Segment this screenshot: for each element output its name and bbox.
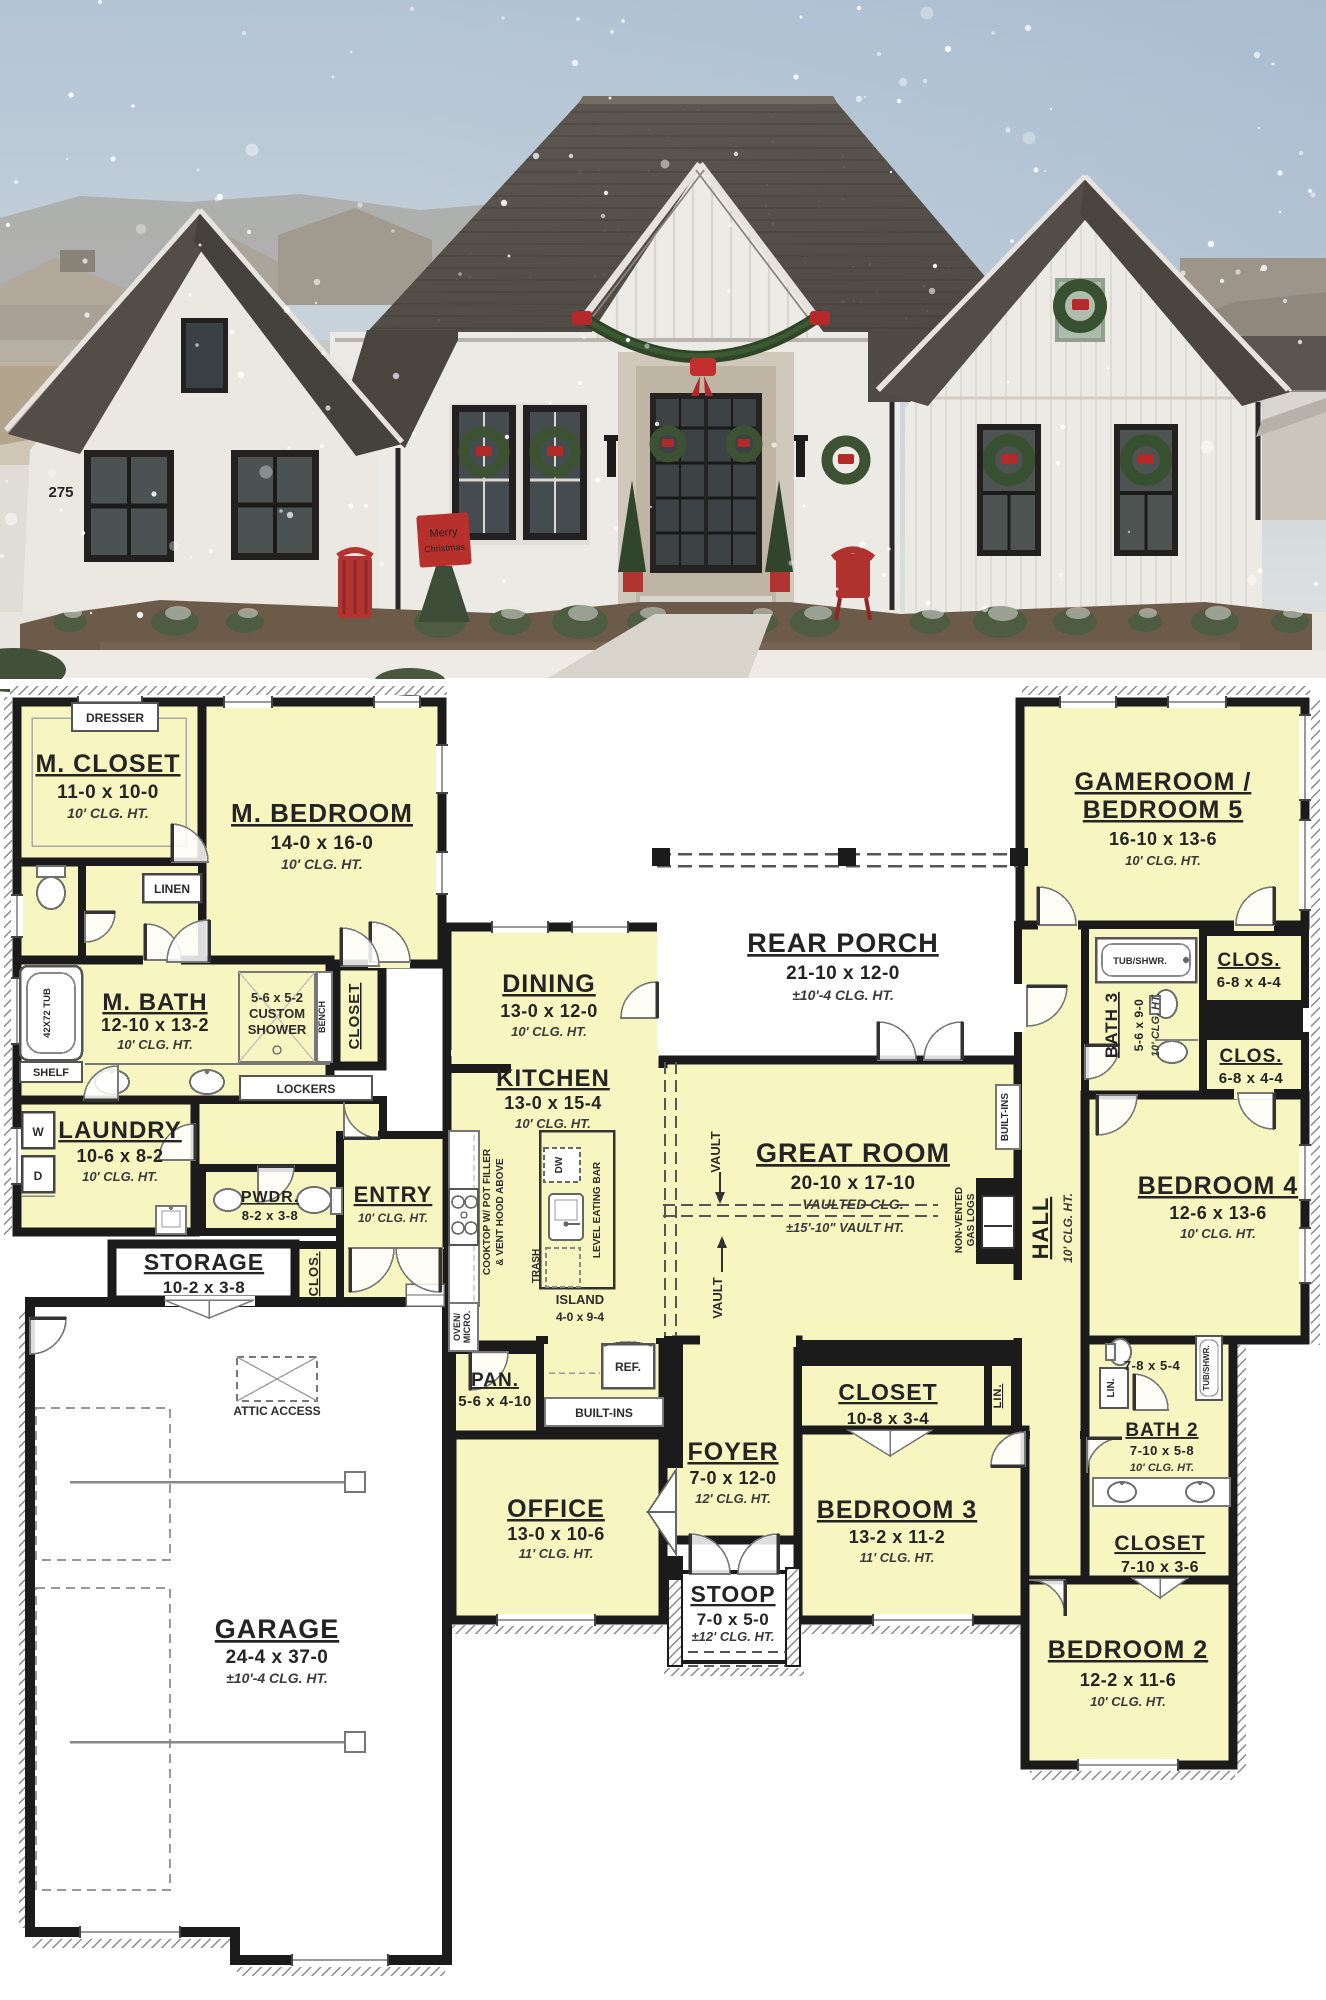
- svg-text:5-6 x 5-2: 5-6 x 5-2: [251, 990, 303, 1005]
- svg-text:14-0 x 16-0: 14-0 x 16-0: [271, 833, 374, 854]
- svg-text:M. BEDROOM: M. BEDROOM: [231, 798, 413, 828]
- svg-text:42X72 TUB: 42X72 TUB: [42, 988, 53, 1038]
- svg-text:10' CLG. HT.: 10' CLG. HT.: [82, 1169, 158, 1184]
- svg-text:275: 275: [48, 484, 73, 501]
- svg-text:GREAT ROOM: GREAT ROOM: [756, 1138, 950, 1168]
- svg-text:CLOS.: CLOS.: [306, 1252, 321, 1297]
- svg-text:W: W: [32, 1125, 44, 1139]
- svg-text:MICRO.: MICRO.: [462, 1311, 472, 1344]
- svg-text:BATH 2: BATH 2: [1125, 1420, 1198, 1441]
- svg-text:M. CLOSET: M. CLOSET: [35, 750, 180, 778]
- svg-text:10' CLG. HT.: 10' CLG. HT.: [1130, 1462, 1194, 1474]
- svg-text:REAR PORCH: REAR PORCH: [747, 928, 939, 958]
- svg-text:CLOS.: CLOS.: [1217, 950, 1280, 971]
- svg-text:VAULT: VAULT: [710, 1277, 725, 1318]
- svg-text:7-0 x 5-0: 7-0 x 5-0: [697, 1610, 770, 1629]
- svg-text:10' CLG. HT.: 10' CLG. HT.: [1090, 1694, 1166, 1709]
- svg-text:10' CLG. HT.: 10' CLG. HT.: [515, 1116, 591, 1131]
- svg-text:Merry: Merry: [429, 526, 458, 540]
- svg-text:12' CLG. HT.: 12' CLG. HT.: [695, 1491, 771, 1506]
- svg-text:4-0 x 9-4: 4-0 x 9-4: [556, 1310, 604, 1324]
- svg-text:STORAGE: STORAGE: [144, 1249, 264, 1275]
- svg-text:10' CLG. HT.: 10' CLG. HT.: [281, 856, 363, 872]
- svg-text:HALL: HALL: [1028, 1197, 1053, 1260]
- svg-text:D: D: [34, 1169, 43, 1183]
- svg-text:CLOS.: CLOS.: [1219, 1046, 1282, 1067]
- svg-text:6-8 x 4-4: 6-8 x 4-4: [1219, 1070, 1284, 1087]
- svg-text:11' CLG. HT.: 11' CLG. HT.: [860, 1550, 935, 1565]
- svg-text:10-2 x 3-8: 10-2 x 3-8: [163, 1278, 246, 1297]
- svg-text:10' CLG. HT.: 10' CLG. HT.: [1061, 1193, 1075, 1263]
- svg-text:LOCKERS: LOCKERS: [277, 1082, 336, 1096]
- svg-text:24-4 x 37-0: 24-4 x 37-0: [226, 1647, 329, 1668]
- svg-text:10' CLG. HT.: 10' CLG. HT.: [117, 1037, 193, 1052]
- svg-text:CLOSET: CLOSET: [1114, 1532, 1205, 1555]
- svg-text:NON-VENTED: NON-VENTED: [954, 1187, 965, 1253]
- svg-text:21-10 x 12-0: 21-10 x 12-0: [786, 963, 900, 984]
- svg-text:M. BATH: M. BATH: [102, 989, 207, 1016]
- svg-text:GAMEROOM /: GAMEROOM /: [1075, 768, 1252, 796]
- svg-text:±15'-10" VAULT HT.: ±15'-10" VAULT HT.: [786, 1220, 904, 1235]
- svg-text:DW: DW: [554, 1156, 565, 1173]
- svg-text:12-2 x 11-6: 12-2 x 11-6: [1080, 1670, 1177, 1690]
- svg-text:LIN.: LIN.: [1106, 1378, 1117, 1397]
- svg-text:FOYER: FOYER: [687, 1438, 778, 1466]
- svg-text:COOKTOP W/ POT FILLER: COOKTOP W/ POT FILLER: [482, 1148, 493, 1275]
- svg-text:10-6 x 8-2: 10-6 x 8-2: [76, 1146, 163, 1166]
- svg-text:OFFICE: OFFICE: [507, 1495, 605, 1523]
- svg-text:5-6 x 9-0: 5-6 x 9-0: [1132, 999, 1146, 1052]
- svg-text:BUILT-INS: BUILT-INS: [1000, 1093, 1011, 1141]
- svg-text:DRESSER: DRESSER: [86, 711, 144, 725]
- svg-text:12-10 x 13-2: 12-10 x 13-2: [101, 1015, 209, 1035]
- svg-text:BENCH: BENCH: [317, 1001, 327, 1033]
- svg-text:11' CLG. HT.: 11' CLG. HT.: [519, 1546, 594, 1561]
- svg-text:8-2 x 3-8: 8-2 x 3-8: [242, 1208, 299, 1223]
- svg-text:13-0 x 12-0: 13-0 x 12-0: [500, 1001, 598, 1021]
- svg-text:10' CLG. HT.: 10' CLG. HT.: [1125, 853, 1201, 868]
- svg-text:11-0 x 10-0: 11-0 x 10-0: [57, 782, 159, 803]
- svg-text:10' CLG. HT.: 10' CLG. HT.: [1180, 1226, 1256, 1241]
- svg-text:REF.: REF.: [615, 1360, 641, 1374]
- svg-text:BEDROOM 5: BEDROOM 5: [1083, 796, 1243, 824]
- svg-text:BATH 3: BATH 3: [1102, 992, 1121, 1058]
- svg-text:& VENT HOOD ABOVE: & VENT HOOD ABOVE: [495, 1158, 506, 1266]
- svg-text:5-6 x 4-10: 5-6 x 4-10: [458, 1393, 531, 1410]
- svg-text:13-0 x 15-4: 13-0 x 15-4: [504, 1093, 602, 1113]
- svg-text:CLOSET: CLOSET: [346, 983, 363, 1050]
- svg-text:16-10 x 13-6: 16-10 x 13-6: [1109, 829, 1217, 849]
- svg-text:10' CLG. HT.: 10' CLG. HT.: [358, 1211, 428, 1225]
- svg-text:PAN.: PAN.: [471, 1370, 519, 1391]
- svg-text:ISLAND: ISLAND: [556, 1292, 604, 1307]
- svg-text:20-10 x 17-10: 20-10 x 17-10: [791, 1173, 916, 1194]
- svg-text:13-2 x 11-2: 13-2 x 11-2: [849, 1527, 946, 1547]
- svg-text:OVEN/: OVEN/: [452, 1313, 462, 1342]
- svg-text:PWDR.: PWDR.: [241, 1189, 299, 1206]
- svg-text:SHOWER: SHOWER: [248, 1022, 307, 1037]
- svg-text:ATTIC ACCESS: ATTIC ACCESS: [233, 1404, 320, 1418]
- svg-text:±12' CLG. HT.: ±12' CLG. HT.: [692, 1629, 775, 1644]
- svg-text:VAULTED CLG.: VAULTED CLG.: [802, 1196, 903, 1212]
- svg-text:6-8 x 4-4: 6-8 x 4-4: [1217, 974, 1282, 991]
- svg-text:10' CLG. HT.: 10' CLG. HT.: [511, 1024, 587, 1039]
- svg-text:GARAGE: GARAGE: [215, 1614, 340, 1644]
- svg-text:7-0 x 12-0: 7-0 x 12-0: [689, 1468, 776, 1488]
- svg-text:10' CLG. HT.: 10' CLG. HT.: [67, 805, 149, 821]
- svg-text:LIN.: LIN.: [992, 1384, 1004, 1409]
- svg-text:GAS LOGS: GAS LOGS: [966, 1193, 977, 1246]
- svg-text:LINEN: LINEN: [154, 882, 190, 896]
- svg-text:CUSTOM: CUSTOM: [249, 1006, 305, 1021]
- svg-text:12-6 x 13-6: 12-6 x 13-6: [1169, 1203, 1267, 1223]
- svg-text:13-0 x 10-6: 13-0 x 10-6: [507, 1524, 605, 1544]
- svg-text:STOOP: STOOP: [690, 1581, 775, 1607]
- svg-text:TRASH: TRASH: [531, 1249, 542, 1283]
- svg-text:DINING: DINING: [502, 970, 596, 998]
- svg-text:±10'-4 CLG. HT.: ±10'-4 CLG. HT.: [792, 987, 894, 1003]
- svg-text:TUB/SHWR.: TUB/SHWR.: [1202, 1345, 1211, 1390]
- svg-text:VAULT: VAULT: [708, 1131, 723, 1172]
- svg-text:BEDROOM 3: BEDROOM 3: [817, 1496, 977, 1524]
- svg-text:LAUNDRY: LAUNDRY: [58, 1117, 181, 1144]
- svg-text:±10'-4 CLG. HT.: ±10'-4 CLG. HT.: [226, 1670, 328, 1686]
- svg-text:7-10 x 5-8: 7-10 x 5-8: [1130, 1443, 1194, 1458]
- svg-text:10-8 x 3-4: 10-8 x 3-4: [847, 1409, 930, 1428]
- svg-text:TUB/SHWR.: TUB/SHWR.: [1113, 956, 1167, 967]
- svg-text:CLOSET: CLOSET: [838, 1379, 937, 1405]
- svg-text:LEVEL EATING BAR: LEVEL EATING BAR: [592, 1161, 603, 1258]
- svg-text:KITCHEN: KITCHEN: [496, 1065, 610, 1092]
- svg-text:7-10 x 3-6: 7-10 x 3-6: [1121, 1559, 1199, 1576]
- svg-text:SHELF: SHELF: [33, 1067, 69, 1079]
- svg-text:BEDROOM 2: BEDROOM 2: [1048, 1636, 1208, 1664]
- svg-text:7-8 x 5-4: 7-8 x 5-4: [1124, 1358, 1181, 1373]
- svg-text:BEDROOM 4: BEDROOM 4: [1138, 1172, 1298, 1200]
- svg-text:10' CLG. HT.: 10' CLG. HT.: [1150, 993, 1162, 1057]
- svg-text:BUILT-INS: BUILT-INS: [575, 1406, 633, 1420]
- svg-text:ENTRY: ENTRY: [354, 1182, 433, 1207]
